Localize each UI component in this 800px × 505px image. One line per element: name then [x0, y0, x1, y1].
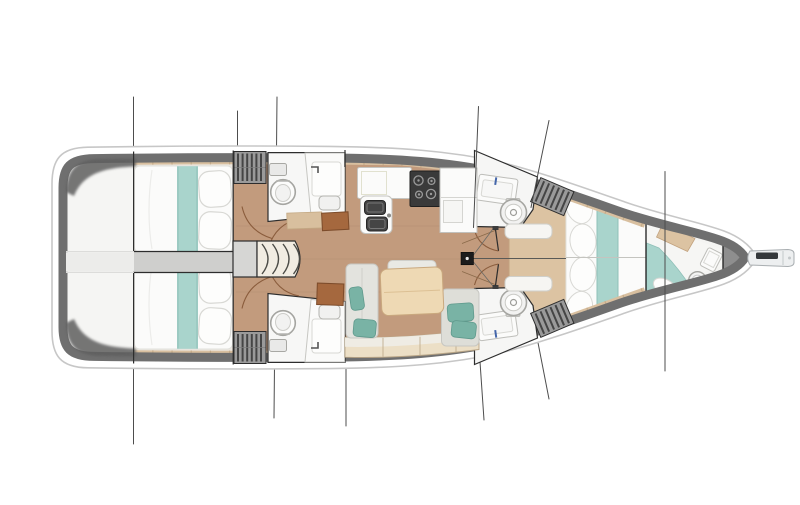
cushion — [447, 303, 474, 323]
burner-center — [418, 193, 420, 195]
berth-foot-bench — [505, 224, 552, 239]
aft-cabin — [134, 151, 234, 253]
toilet-tank — [270, 164, 287, 176]
anchor-roller — [756, 253, 778, 260]
burner-center — [430, 180, 432, 182]
saloon-table — [380, 267, 444, 316]
teal-cushion-1 — [348, 286, 365, 311]
mast-center — [466, 257, 469, 260]
faucet-icon — [495, 177, 496, 184]
cushion — [451, 320, 477, 339]
door-hinge-block — [493, 226, 499, 230]
companionway-landing — [233, 241, 257, 277]
toilet-bowl — [505, 204, 522, 221]
cushion — [348, 286, 365, 311]
aft-wardrobe — [234, 152, 266, 184]
corridor-stern-extension — [66, 252, 134, 272]
bowsprit-pin — [788, 257, 791, 260]
corridor-deck — [134, 252, 233, 273]
pillow — [198, 211, 232, 250]
shelf — [287, 212, 323, 229]
teal-cushion-2 — [353, 319, 377, 338]
table — [322, 212, 349, 231]
burner-center — [417, 179, 419, 181]
galley-faucet — [387, 214, 391, 218]
bowsprit — [748, 250, 794, 267]
teal-cushion-4 — [451, 320, 477, 339]
pillow — [198, 170, 232, 208]
brown-table-bottom — [317, 283, 344, 305]
side-shelf-top — [287, 212, 323, 229]
aft-pillow-1 — [198, 170, 232, 208]
stay-line-6-lower — [537, 335, 550, 399]
aft-berth-teal-runner — [177, 166, 198, 252]
galley-counter-left — [358, 168, 412, 199]
companionway — [233, 241, 300, 277]
fridge-door — [444, 201, 463, 223]
stove — [410, 171, 441, 207]
yacht-deck-plan — [0, 0, 800, 505]
aft-pillow-2 — [198, 211, 232, 250]
burner-center — [430, 193, 432, 195]
deck-plan-svg — [0, 0, 800, 505]
table — [317, 283, 344, 305]
brown-table-top — [322, 212, 349, 231]
sink-bowl — [319, 196, 340, 210]
corridor — [66, 252, 234, 273]
sink-basin — [481, 180, 513, 201]
teal-cushion-3 — [447, 303, 474, 323]
cushion — [353, 319, 377, 338]
toilet-bowl — [276, 185, 291, 202]
